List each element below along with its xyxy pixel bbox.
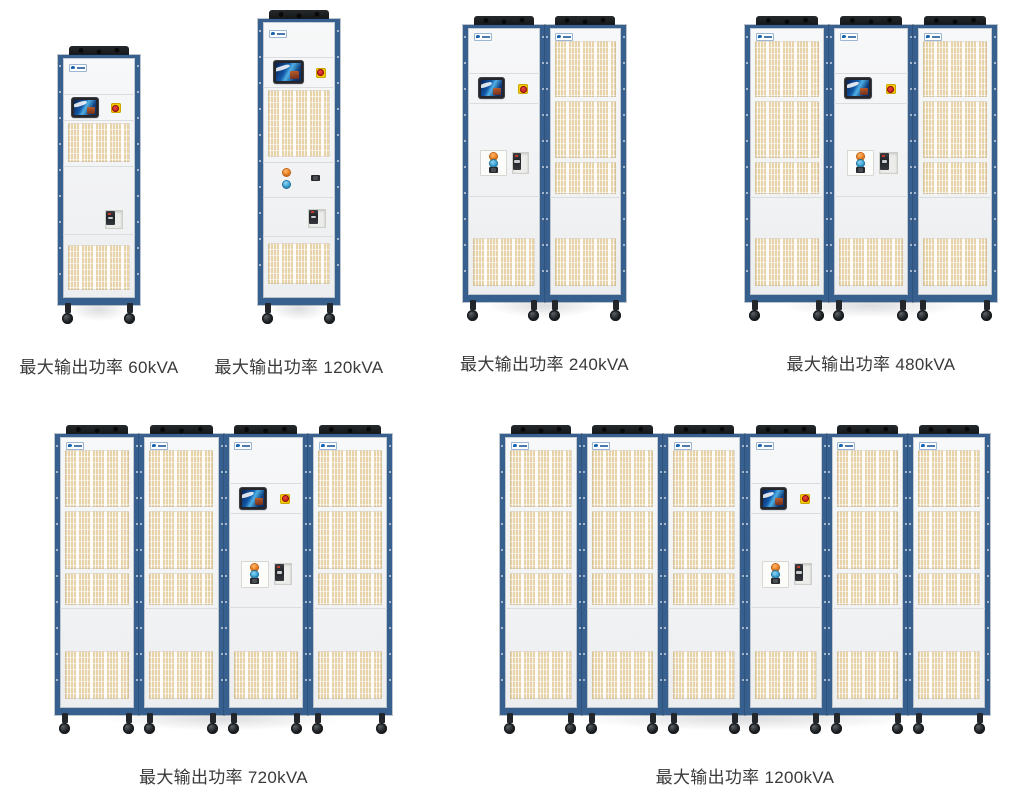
screen-graphic [74,100,96,115]
panel-divider [313,608,387,609]
ventilation-grille [149,651,213,700]
panel-divider [505,608,577,609]
brand-logo-badge [840,33,858,41]
control-cabinet [745,434,827,715]
touchscreen-display [240,488,266,509]
panel-divider [750,197,824,198]
brand-logo-badge [592,442,610,450]
caster-wheels [912,715,987,737]
cabinet-front-panel [829,25,913,302]
caster-wheel [749,713,761,735]
cabinet-row [58,55,140,305]
blue-push-button [490,160,497,167]
brand-logo-badge [756,442,774,450]
caster-wheel [324,303,336,325]
orange-push-button [283,169,290,176]
product-lineup: 最大输出功率 60kVA 最大输出功率 120kVA 最大输出功率 240kVA… [0,0,1017,793]
ventilation-grille [839,238,903,286]
ventilation-grille [68,245,130,290]
brand-logo-badge [234,442,252,450]
panel-divider [913,608,985,609]
panel-divider [834,196,908,197]
touchscreen-display [479,78,504,98]
cabinet-front-panel [913,25,997,302]
ventilation-grille [555,238,617,286]
product-group-120kva: 最大输出功率 120kVA [258,19,340,305]
panel-divider [263,162,335,163]
vent-cabinet [582,434,664,715]
ventilation-grille [510,450,572,507]
ventilation-grille [837,450,899,507]
ventilation-grille [918,573,980,605]
brand-logo-badge [69,64,87,72]
orange-push-button [772,564,779,571]
ventilation-grille [755,651,817,700]
ventilation-grille [318,573,382,605]
circuit-breaker [274,563,293,586]
ventilation-grille [755,41,819,98]
touchscreen-display [761,488,786,509]
cabinet-front-panel [582,434,664,715]
caster-wheel [913,713,925,735]
panel-divider [834,73,908,74]
caster-wheel [228,713,240,735]
power-caption-1200kva: 最大输出功率 1200kVA [656,763,835,788]
screen-graphic [242,490,264,507]
panel-divider [63,234,135,235]
caster-wheel [586,713,598,735]
ventilation-grille [318,450,382,507]
breaker-switch [275,564,284,581]
ventilation-grille [592,573,654,605]
blue-push-button [283,181,290,188]
control-button-panel [762,561,789,588]
breaker-switch [795,564,804,581]
brand-logo-badge [837,442,855,450]
control-cabinet [463,25,545,302]
cabinet-row [745,25,997,302]
cabinet-front-panel [500,434,582,715]
panel-divider [229,483,303,484]
emergency-stop-button [800,494,810,504]
caster-wheels [61,305,136,327]
circuit-breaker [879,152,898,174]
brand-logo-badge [919,442,937,450]
ventilation-grille [837,651,899,700]
brand-logo-badge [474,33,492,41]
blue-push-button [772,571,779,578]
caster-wheels [585,715,660,737]
ventilation-grille [149,450,213,507]
ventilation-grille [592,450,654,507]
ventilation-grille [65,651,129,700]
cabinet-row [463,25,626,302]
product-group-240kva: 最大输出功率 240kVA [463,25,626,302]
caster-wheels [261,305,336,327]
ventilation-grille [918,651,980,700]
emergency-stop-button [280,494,290,504]
caster-wheel [647,713,659,735]
circuit-breaker [512,152,530,174]
caster-wheel [376,713,388,735]
cabinet-front-panel [224,434,308,715]
orange-push-button [251,564,258,571]
control-button-panel [241,561,268,588]
ventilation-grille [555,101,617,159]
orange-push-button [490,153,497,160]
emergency-stop-button [518,84,528,94]
caster-wheels [748,302,825,324]
screen-graphic [276,63,301,80]
brand-logo-badge [756,33,774,41]
caster-wheels [748,715,823,737]
control-button-panel [847,150,874,176]
ventilation-grille [268,243,330,284]
caster-wheel [749,300,761,322]
panel-divider [668,608,740,609]
ventilation-grille [149,573,213,605]
panel-divider [63,94,135,95]
vent-cabinet [139,434,223,715]
cabinet-front-panel [745,25,829,302]
cabinet-front-panel [663,434,745,715]
cabinet-row [258,19,340,305]
control-cabinet [829,25,913,302]
power-caption-720kva: 最大输出功率 720kVA [139,763,308,788]
power-caption-240kva: 最大输出功率 240kVA [460,350,629,375]
ventilation-grille [510,651,572,700]
panel-divider [750,483,822,484]
ventilation-grille [65,573,129,605]
vent-cabinet [663,434,745,715]
vent-cabinet [827,434,909,715]
panel-divider [468,196,540,197]
panel-divider [263,57,335,58]
brand-logo-badge [924,33,942,41]
power-caption-120kva: 最大输出功率 120kVA [215,353,384,378]
caster-wheel [833,300,845,322]
caster-wheel [207,713,219,735]
touchscreen-display [845,78,871,98]
panel-divider [144,608,218,609]
ventilation-grille [673,511,735,570]
emergency-stop-button [886,84,896,94]
product-group-480kva: 最大输出功率 480kVA [745,25,997,302]
blue-push-button [251,571,258,578]
panel-divider [834,103,908,104]
breaker-switch [880,153,889,170]
ventilation-grille [65,450,129,507]
caster-wheels [548,302,623,324]
ventilation-grille [923,101,987,159]
caster-wheels [830,715,905,737]
caster-wheels [466,302,541,324]
panel-divider [550,197,622,198]
control-cabinet [258,19,340,305]
caster-wheel [565,713,577,735]
signal-connector [250,578,259,584]
ventilation-grille [65,511,129,570]
ventilation-grille [918,511,980,570]
cabinet-row [500,434,990,715]
control-cabinet [224,434,308,715]
caster-wheels [503,715,578,737]
panel-divider [263,236,335,237]
circuit-breaker [308,209,326,229]
panel-divider [587,608,659,609]
signal-connector [489,167,498,173]
brand-logo-badge [511,442,529,450]
ventilation-grille [755,162,819,194]
cabinet-front-panel [745,434,827,715]
ventilation-grille [923,238,987,286]
cabinet-front-panel [908,434,990,715]
touchscreen-display [72,98,98,117]
ventilation-grille [473,238,535,286]
vent-cabinet [908,434,990,715]
caster-wheel [813,300,825,322]
caster-wheel [467,300,479,322]
ventilation-grille [555,41,617,98]
caster-wheel [729,713,741,735]
brand-logo-badge [66,442,84,450]
touchscreen-display [274,61,303,82]
caster-wheel [610,300,622,322]
screen-graphic [763,490,784,507]
caster-wheel [262,303,274,325]
ventilation-grille [318,511,382,570]
caster-wheel [504,713,516,735]
vent-cabinet [55,434,139,715]
ventilation-grille [318,651,382,700]
brand-logo-badge [319,442,337,450]
caster-wheel [312,713,324,735]
ventilation-grille [673,573,735,605]
circuit-breaker [105,210,123,229]
caster-wheel [831,713,843,735]
panel-divider [229,513,303,514]
caster-wheels [916,302,993,324]
ventilation-grille [837,511,899,570]
panel-divider [63,120,135,121]
ventilation-grille [149,511,213,570]
ventilation-grille [673,651,735,700]
ventilation-grille [555,162,617,194]
brand-logo-badge [269,30,287,38]
screen-graphic [481,80,502,96]
caster-wheel [810,713,822,735]
vent-cabinet [545,25,627,302]
ventilation-grille [673,450,735,507]
caster-wheel [917,300,929,322]
cabinet-front-panel [545,25,627,302]
caster-wheel [123,713,135,735]
brand-logo-badge [555,33,573,41]
caster-wheel [981,300,993,322]
ventilation-grille [510,573,572,605]
caster-wheels [143,715,221,737]
caster-wheel [59,713,71,735]
ventilation-grille [923,41,987,98]
ventilation-grille [918,450,980,507]
panel-divider [229,607,303,608]
panel-divider [750,607,822,608]
brand-logo-badge [150,442,168,450]
panel-divider [263,87,335,88]
panel-divider [750,513,822,514]
vent-cabinet [745,25,829,302]
emergency-stop-button [111,103,121,113]
cabinet-front-panel [55,434,139,715]
vent-cabinet [500,434,582,715]
vent-cabinet [913,25,997,302]
cabinet-front-panel [827,434,909,715]
panel-divider [468,103,540,104]
ventilation-grille [510,511,572,570]
ventilation-grille [234,651,298,700]
panel-divider [263,197,335,198]
product-group-1200kva: 最大输出功率 1200kVA [500,434,990,715]
breaker-switch [106,211,115,225]
emergency-stop-button [316,68,326,78]
caster-wheels [311,715,389,737]
panel-divider [63,166,135,167]
circuit-breaker [794,563,812,586]
panel-divider [832,608,904,609]
screen-graphic [847,80,869,96]
caster-wheel [549,300,561,322]
ventilation-grille [68,123,130,161]
cabinet-front-panel [308,434,392,715]
breaker-switch [309,210,318,225]
product-group-720kva: 最大输出功率 720kVA [55,434,392,715]
vent-cabinet [308,434,392,715]
ventilation-grille [268,90,330,157]
ventilation-grille [755,238,819,286]
ventilation-grille [592,511,654,570]
panel-divider [468,73,540,74]
power-caption-480kva: 最大输出功率 480kVA [787,350,956,375]
caster-wheels [667,715,742,737]
caster-wheel [144,713,156,735]
panel-divider [918,197,992,198]
cabinet-front-panel [139,434,223,715]
brand-logo-badge [674,442,692,450]
caster-wheel [897,300,909,322]
caster-wheel [291,713,303,735]
control-button-panel [480,150,506,176]
caster-wheel [124,303,136,325]
ventilation-grille [592,651,654,700]
caster-wheel [668,713,680,735]
caster-wheel [892,713,904,735]
ventilation-grille [837,573,899,605]
caster-wheels [227,715,305,737]
caster-wheels [832,302,909,324]
control-cabinet [58,55,140,305]
signal-connector [311,175,320,181]
caster-wheel [528,300,540,322]
cabinet-front-panel [58,55,140,305]
caster-wheel [974,713,986,735]
caster-wheels [58,715,136,737]
breaker-switch [513,153,522,170]
power-caption-60kva: 最大输出功率 60kVA [19,353,178,378]
orange-push-button [857,153,864,160]
panel-divider [60,608,134,609]
cabinet-front-panel [258,19,340,305]
signal-connector [856,167,865,173]
cabinet-front-panel [463,25,545,302]
cabinet-row [55,434,392,715]
signal-connector [771,578,780,584]
blue-push-button [857,160,864,167]
ventilation-grille [923,162,987,194]
ventilation-grille [755,101,819,159]
product-group-60kva: 最大输出功率 60kVA [58,55,140,305]
caster-wheel [62,303,74,325]
